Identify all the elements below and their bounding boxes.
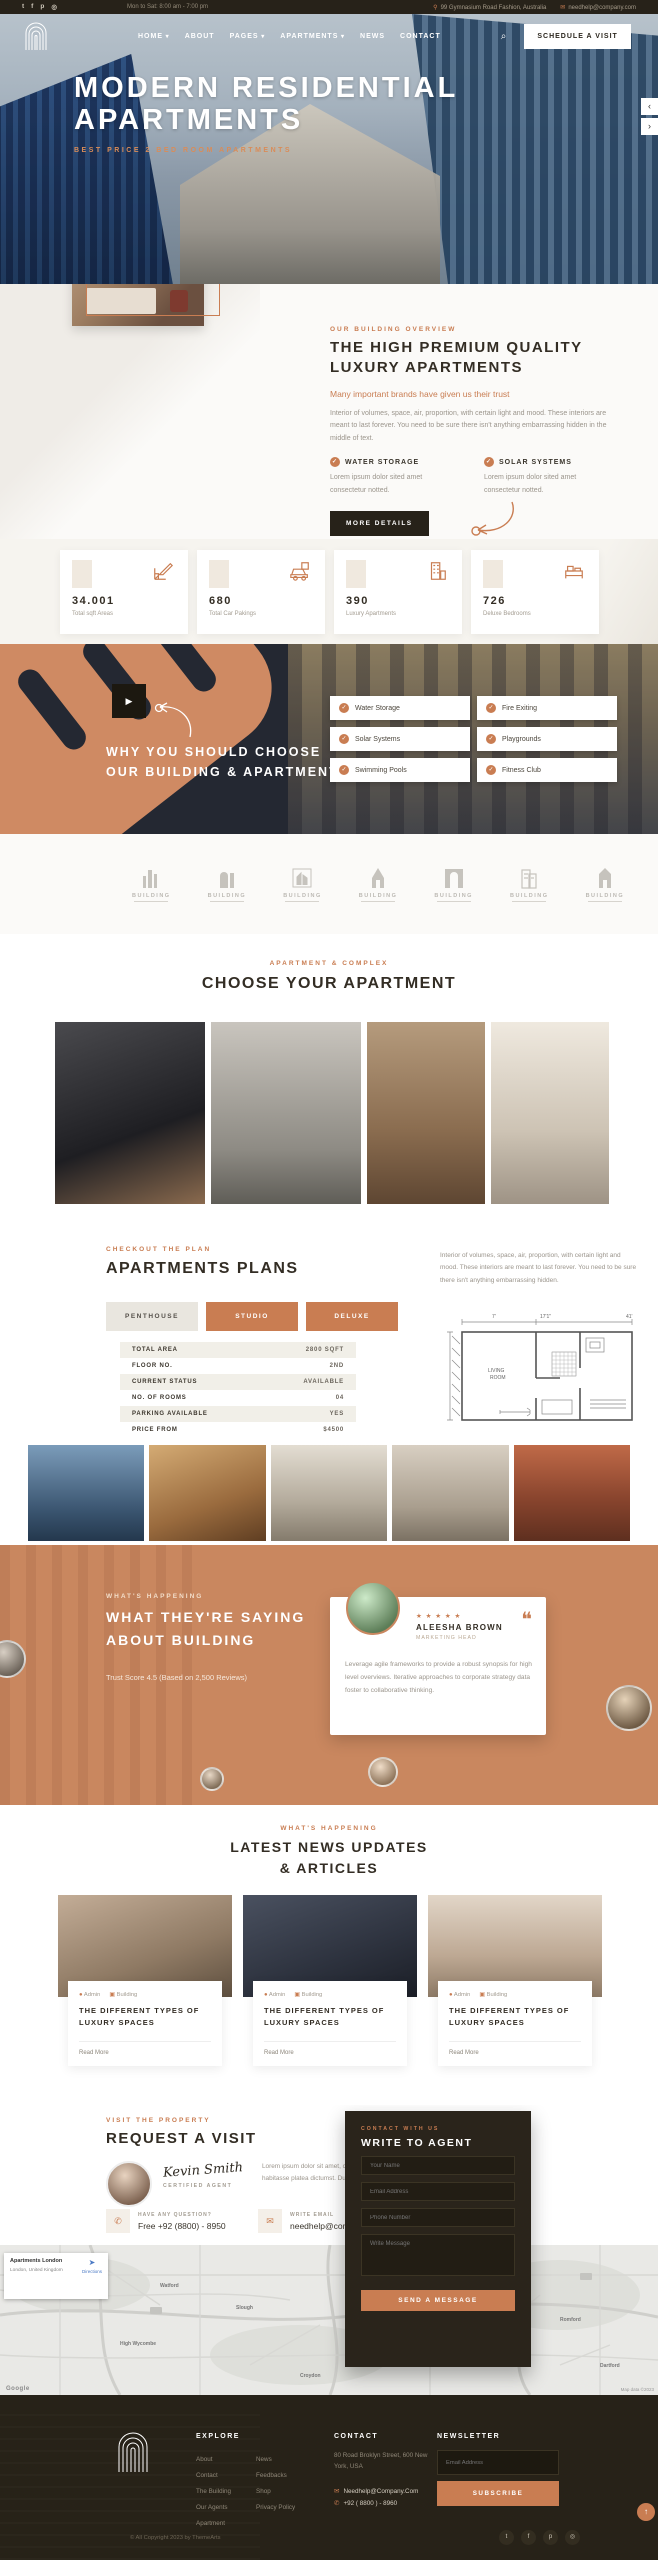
footer-newsletter-title: NEWSLETTER xyxy=(437,2433,500,2440)
write-to-agent-card: CONTACT WITH US WRITE TO AGENT SEND A ME… xyxy=(345,2111,531,2367)
visit-section: VISIT THE PROPERTY REQUEST A VISIT Kevin… xyxy=(0,2105,658,2395)
check-icon xyxy=(486,765,496,775)
amenity-item: Fitness Club xyxy=(477,758,617,782)
partner-logo: BUILDING xyxy=(283,866,322,902)
svg-text:7': 7' xyxy=(492,1314,496,1320)
feature-water-storage: WATER STORAGE Lorem ipsum dolor sited am… xyxy=(330,457,440,497)
gallery-photo-blue-building[interactable] xyxy=(28,1445,144,1541)
plan-tabs: PENTHOUSE STUDIO DELUXE xyxy=(106,1302,398,1331)
more-details-button[interactable]: MORE DETAILS xyxy=(330,511,429,536)
stat-accent-block xyxy=(346,560,366,588)
gallery-strip xyxy=(0,1445,658,1545)
scroll-to-top-button[interactable]: ↑ xyxy=(637,2503,655,2521)
testimonials-heading: WHAT THEY'RE SAYING ABOUT BUILDING xyxy=(106,1606,305,1652)
phone-field[interactable] xyxy=(361,2208,515,2227)
news-eyebrow: WHAT'S HAPPENING xyxy=(0,1825,658,1832)
agent-signature: Kevin Smith xyxy=(163,2160,244,2181)
building-icon: ▣ xyxy=(109,1992,115,1998)
testimonials-eyebrow: WHAT'S HAPPENING xyxy=(106,1593,203,1600)
search-icon[interactable]: ⌕ xyxy=(501,31,507,42)
agent-avatar xyxy=(106,2161,152,2207)
footer-links-col1: About Contact The Building Our Agents Ap… xyxy=(196,2447,231,2527)
user-icon: ● xyxy=(79,1992,83,1998)
plans-eyebrow: CHECKOUT THE PLAN xyxy=(106,1246,211,1253)
partner-logo: BUILDING xyxy=(586,866,625,902)
agent-role: CERTIFIED AGENT xyxy=(163,2183,232,2189)
plan-room-label: LIVING xyxy=(488,1368,505,1374)
map-place-title: Apartments London xyxy=(10,2258,63,2264)
partner-logo: BUILDING xyxy=(359,866,398,902)
check-icon xyxy=(486,734,496,744)
directions-button[interactable]: ➤ Directions xyxy=(82,2258,102,2294)
plan-spec-table: TOTAL AREA2800 SQFT FLOOR NO.2ND CURRENT… xyxy=(120,1342,356,1438)
footer-link[interactable]: About xyxy=(196,2456,231,2463)
amenity-item: Fire Exiting xyxy=(477,696,617,720)
tab-penthouse[interactable]: PENTHOUSE xyxy=(106,1302,198,1331)
bed-icon xyxy=(563,560,585,582)
tab-deluxe[interactable]: DELUXE xyxy=(306,1302,398,1331)
read-more-link[interactable]: Read More xyxy=(79,2041,211,2056)
table-row: PRICE FROM$4500 xyxy=(120,1422,356,1438)
news-section: WHAT'S HAPPENING LATEST NEWS UPDATES & A… xyxy=(0,1805,658,2105)
news-title[interactable]: THE DIFFERENT TYPES OF LUXURY SPACES xyxy=(449,2005,581,2029)
ruler-pencil-icon xyxy=(152,560,174,582)
check-icon xyxy=(339,734,349,744)
copyright: © All Copyright 2023 by ThemeArts xyxy=(130,2535,221,2541)
choose-heading: CHOOSE YOUR APARTMENT xyxy=(0,973,658,995)
map-attribution: Map data ©2023 xyxy=(621,2387,654,2392)
floor-plan-drawing: 17'1"7'41' LIVINGROOM xyxy=(440,1308,645,1433)
nav-item-apartments[interactable]: APARTMENTS xyxy=(280,33,345,40)
amenity-item: Swimming Pools xyxy=(330,758,470,782)
star-rating: ★ ★ ★ ★ ★ xyxy=(416,1612,461,1620)
partner-logo: BUILDING xyxy=(510,866,549,902)
building-icon xyxy=(426,560,448,582)
footer-link[interactable]: News xyxy=(256,2456,295,2463)
subscribe-button[interactable]: SUBSCRIBE xyxy=(437,2481,559,2506)
testimonials-section: WHAT'S HAPPENING WHAT THEY'RE SAYING ABO… xyxy=(0,1545,658,1805)
read-more-link[interactable]: Read More xyxy=(264,2041,396,2056)
topbar: t f p ◎ Mon to Sat: 8:00 am - 7:00 pm ⚲9… xyxy=(0,0,658,14)
pinterest-icon[interactable]: p xyxy=(543,2530,558,2545)
facebook-icon[interactable]: f xyxy=(31,3,33,11)
facebook-icon[interactable]: f xyxy=(521,2530,536,2545)
footer-link[interactable]: Apartment xyxy=(196,2520,231,2527)
tab-studio[interactable]: STUDIO xyxy=(206,1302,298,1331)
footer-link[interactable]: Shop xyxy=(256,2488,295,2495)
check-icon xyxy=(339,703,349,713)
testimonial-quote: Leverage agile frameworks to provide a r… xyxy=(345,1659,532,1698)
apartment-photo-dark-kitchen[interactable] xyxy=(55,1022,205,1204)
footer-contact-title: CONTACT xyxy=(334,2433,378,2440)
quote-icon: ❝ xyxy=(521,1611,532,1627)
hero-title-line2: APARTMENTS xyxy=(74,104,458,136)
footer-explore-title: EXPLORE xyxy=(196,2433,240,2440)
play-video-button[interactable] xyxy=(112,684,146,718)
twitter-icon[interactable]: t xyxy=(22,3,24,11)
newsletter-email-input[interactable] xyxy=(437,2450,559,2475)
svg-text:17'1": 17'1" xyxy=(540,1314,551,1320)
message-field[interactable] xyxy=(361,2234,515,2276)
curved-arrow-icon xyxy=(460,500,520,539)
partner-logos: BUILDING BUILDING BUILDING BUILDING BUIL… xyxy=(0,834,658,934)
hero: HOME ABOUT PAGES APARTMENTS NEWS CONTACT… xyxy=(0,14,658,284)
building-icon: ▣ xyxy=(294,1992,300,1998)
overview-body: Interior of volumes, space, air, proport… xyxy=(330,408,620,446)
footer-email[interactable]: ✉Needhelp@Company.Com xyxy=(334,2487,418,2495)
footer-link[interactable]: Privacy Policy xyxy=(256,2504,295,2511)
twitter-icon[interactable]: t xyxy=(499,2530,514,2545)
map-place-subtitle: London, United Kingdom xyxy=(10,2267,63,2274)
overview-lead: Many important brands have given us thei… xyxy=(330,389,640,399)
hand-shape xyxy=(0,644,296,834)
apartment-photo-white-dining[interactable] xyxy=(491,1022,609,1204)
plans-heading: APARTMENTS PLANS xyxy=(106,1258,299,1280)
form-heading: WRITE TO AGENT xyxy=(361,2137,515,2149)
news-title[interactable]: THE DIFFERENT TYPES OF LUXURY SPACES xyxy=(264,2005,396,2029)
check-icon xyxy=(330,457,340,467)
visit-eyebrow: VISIT THE PROPERTY xyxy=(106,2117,211,2124)
table-row: PARKING AVAILABLEYES xyxy=(120,1406,356,1422)
schedule-visit-button[interactable]: SCHEDULE A VISIT xyxy=(524,24,630,49)
news-heading: LATEST NEWS UPDATES & ARTICLES xyxy=(0,1837,658,1879)
testimonial-role: MARKETING HEAD xyxy=(416,1635,477,1641)
trust-score: Trust Score 4.5 (Based on 2,500 Reviews) xyxy=(106,1673,247,1682)
site-logo[interactable] xyxy=(24,21,48,51)
phone-icon: ✆ xyxy=(334,2500,339,2507)
table-row: NO. OF ROOMS04 xyxy=(120,1390,356,1406)
overview-heading: THE HIGH PREMIUM QUALITY LUXURY APARTMEN… xyxy=(330,338,640,379)
read-more-link[interactable]: Read More xyxy=(449,2041,581,2056)
nav-item-home[interactable]: HOME xyxy=(138,33,170,40)
email-field[interactable] xyxy=(361,2182,515,2201)
car-icon xyxy=(289,560,311,582)
svg-text:41': 41' xyxy=(626,1314,633,1320)
overview-section: OUR BUILDING OVERVIEW THE HIGH PREMIUM Q… xyxy=(0,284,658,539)
choose-eyebrow: APARTMENT & COMPLEX xyxy=(0,960,658,967)
choose-apartment-section: APARTMENT & COMPLEX CHOOSE YOUR APARTMEN… xyxy=(0,934,658,1230)
partner-logo: BUILDING xyxy=(132,866,171,902)
mail-icon: ✉ xyxy=(560,5,565,11)
footer-link[interactable]: Contact xyxy=(196,2472,231,2479)
footer-link[interactable]: Our Agents xyxy=(196,2504,231,2511)
stat-apartments: 390 Luxury Apartments xyxy=(334,550,462,634)
user-icon: ● xyxy=(264,1992,268,1998)
google-logo: Google xyxy=(6,2386,30,2392)
hero-subtitle: BEST PRICE 2 BED ROOM APARTMENTS xyxy=(74,147,458,154)
instagram-icon[interactable]: ◎ xyxy=(51,3,57,11)
footer-socials: t f p ◎ xyxy=(499,2530,580,2545)
mail-icon: ✉ xyxy=(258,2209,282,2233)
topbar-address: ⚲99 Gymnasium Road Fashion, Australia xyxy=(433,4,546,11)
plans-description: Interior of volumes, space, air, proport… xyxy=(440,1250,640,1287)
stat-parking: 680 Total Car Pakings xyxy=(197,550,325,634)
topbar-email[interactable]: ✉needhelp@company.com xyxy=(560,4,636,11)
nav-item-contact[interactable]: CONTACT xyxy=(400,33,441,40)
table-row: FLOOR NO.2ND xyxy=(120,1358,356,1374)
form-eyebrow: CONTACT WITH US xyxy=(361,2126,515,2132)
send-message-button[interactable]: SEND A MESSAGE xyxy=(361,2290,515,2311)
plans-section: CHECKOUT THE PLAN APARTMENTS PLANS Inter… xyxy=(0,1230,658,1445)
footer-links-col2: News Feedbacks Shop Privacy Policy xyxy=(256,2447,295,2511)
apartment-photo-wood-dining[interactable] xyxy=(367,1022,485,1204)
table-row: CURRENT STATUSAVAILABLE xyxy=(120,1374,356,1390)
name-field[interactable] xyxy=(361,2156,515,2175)
check-icon xyxy=(484,457,494,467)
map[interactable]: Watford Enfield High Wycombe Romford Cro… xyxy=(0,2245,658,2395)
nav-item-about[interactable]: ABOUT xyxy=(185,33,215,40)
footer-address: 80 Road Broklyn Street, 600 New York, US… xyxy=(334,2450,429,2473)
nav-item-news[interactable]: NEWS xyxy=(360,33,385,40)
amenity-item: Water Storage xyxy=(330,696,470,720)
amenities-list: Water Storage Fire Exiting Solar Systems… xyxy=(330,696,617,782)
opening-hours: Mon to Sat: 8:00 am - 7:00 pm xyxy=(127,4,433,10)
mail-icon: ✉ xyxy=(334,2488,339,2495)
stat-accent-block xyxy=(72,560,92,588)
footer-link[interactable]: The Building xyxy=(196,2488,231,2495)
chair-shape xyxy=(170,290,188,312)
avatar xyxy=(368,1757,398,1787)
news-title[interactable]: THE DIFFERENT TYPES OF LUXURY SPACES xyxy=(79,2005,211,2029)
phone-number[interactable]: Free +92 (8800) - 8950 xyxy=(138,2221,226,2231)
why-section: WHY YOU SHOULD CHOOSE OUR BUILDING & APA… xyxy=(0,644,658,834)
gallery-photo-luxury-interior[interactable] xyxy=(149,1445,265,1541)
avatar xyxy=(200,1767,224,1791)
gallery-photo-corridor[interactable] xyxy=(271,1445,387,1541)
feature-solar-systems: SOLAR SYSTEMS Lorem ipsum dolor sited am… xyxy=(484,457,594,497)
bedroom-photo xyxy=(72,284,204,326)
phone-contact: ✆ HAVE ANY QUESTION?Free +92 (8800) - 89… xyxy=(106,2209,226,2233)
gallery-photo-living-room[interactable] xyxy=(392,1445,508,1541)
avatar xyxy=(606,1685,652,1731)
gallery-photo-red-building[interactable] xyxy=(514,1445,630,1541)
pin-icon: ⚲ xyxy=(433,5,437,11)
check-icon xyxy=(486,703,496,713)
nav-item-pages[interactable]: PAGES xyxy=(230,33,266,40)
amenity-item: Solar Systems xyxy=(330,727,470,751)
check-icon xyxy=(339,765,349,775)
apartment-photos xyxy=(55,1022,609,1204)
testimonial-card: ★ ★ ★ ★ ★ ALEESHA BROWN MARKETING HEAD ❝… xyxy=(330,1597,546,1735)
pinterest-icon[interactable]: p xyxy=(40,3,44,11)
stat-sqft: 34.001 Total sqft Areas xyxy=(60,550,188,634)
amenity-item: Playgrounds xyxy=(477,727,617,751)
slider-prev-button[interactable]: ‹ xyxy=(641,98,658,115)
partner-logo: BUILDING xyxy=(434,866,473,902)
svg-text:ROOM: ROOM xyxy=(490,1375,506,1381)
apartment-photo-gray-kitchen[interactable] xyxy=(211,1022,361,1204)
hero-title-line1: MODERN RESIDENTIAL xyxy=(74,72,458,104)
hero-text: MODERN RESIDENTIAL APARTMENTS BEST PRICE… xyxy=(74,72,458,154)
stat-bedrooms: 726 Deluxe Bedrooms xyxy=(471,550,599,634)
footer-phone[interactable]: ✆+92 ( 8800 ) - 8960 xyxy=(334,2499,397,2507)
table-row: TOTAL AREA2800 SQFT xyxy=(120,1342,356,1358)
partner-logo: BUILDING xyxy=(208,866,247,902)
stat-accent-block xyxy=(483,560,503,588)
news-card: ● Admin▣ Building THE DIFFERENT TYPES OF… xyxy=(243,1895,417,2066)
stat-accent-block xyxy=(209,560,229,588)
news-card: ● Admin▣ Building THE DIFFERENT TYPES OF… xyxy=(428,1895,602,2066)
overview-eyebrow: OUR BUILDING OVERVIEW xyxy=(330,326,640,333)
footer-logo[interactable] xyxy=(116,2431,150,2473)
bed-shape xyxy=(86,288,156,314)
nav-menu: HOME ABOUT PAGES APARTMENTS NEWS CONTACT xyxy=(138,33,441,40)
map-info-card: Apartments London London, United Kingdom… xyxy=(4,2253,108,2299)
user-icon: ● xyxy=(449,1992,453,1998)
phone-icon: ✆ xyxy=(106,2209,130,2233)
testimonial-name: ALEESHA BROWN xyxy=(416,1623,503,1632)
directions-icon: ➤ xyxy=(82,2258,102,2267)
main-nav: HOME ABOUT PAGES APARTMENTS NEWS CONTACT… xyxy=(0,14,658,58)
footer: EXPLORE About Contact The Building Our A… xyxy=(0,2395,658,2560)
building-icon: ▣ xyxy=(479,1992,485,1998)
curved-arrow-icon xyxy=(150,699,196,741)
footer-link[interactable]: Feedbacks xyxy=(256,2472,295,2479)
news-card: ● Admin▣ Building THE DIFFERENT TYPES OF… xyxy=(58,1895,232,2066)
testimonial-avatar xyxy=(346,1581,400,1635)
why-heading: WHY YOU SHOULD CHOOSE OUR BUILDING & APA… xyxy=(106,742,349,782)
instagram-icon[interactable]: ◎ xyxy=(565,2530,580,2545)
topbar-socials: t f p ◎ xyxy=(22,3,57,11)
stats-strip: 34.001 Total sqft Areas 680 Total Car Pa… xyxy=(0,539,658,644)
slider-next-button[interactable]: › xyxy=(641,118,658,135)
visit-heading: REQUEST A VISIT xyxy=(106,2129,257,2149)
avatar xyxy=(0,1640,26,1678)
